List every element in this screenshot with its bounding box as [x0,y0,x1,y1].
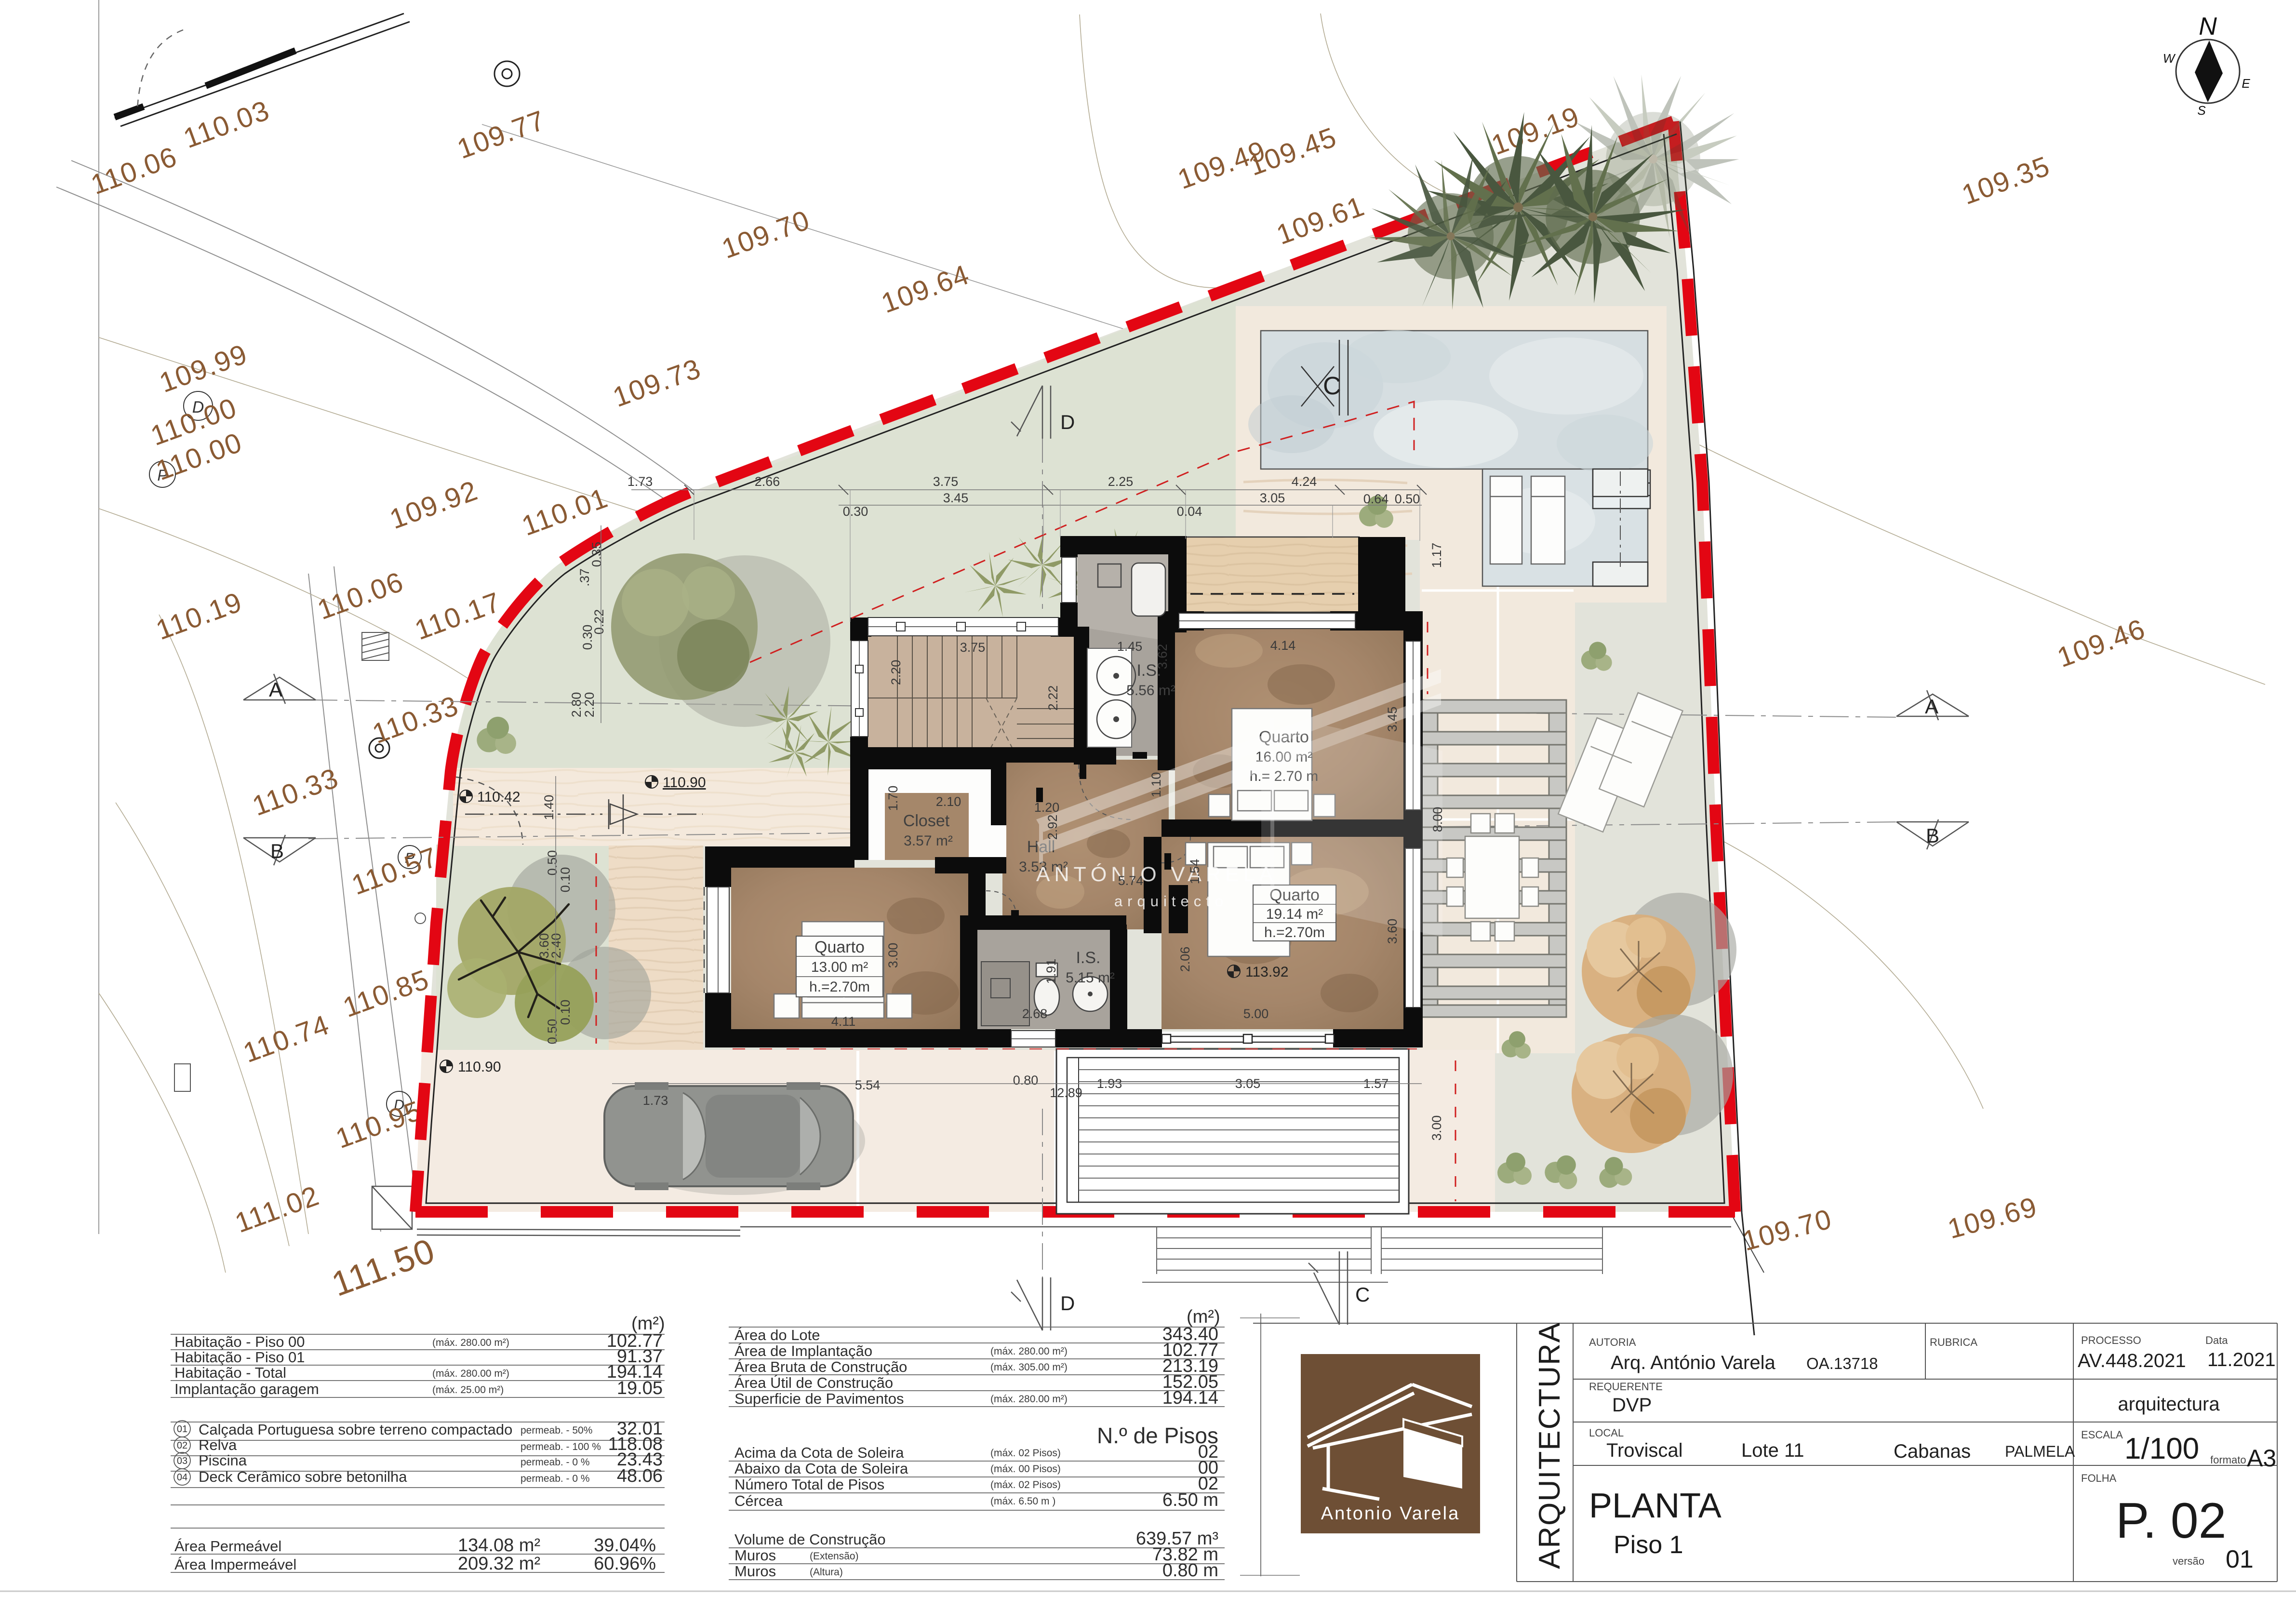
svg-text:6.50 m: 6.50 m [1162,1490,1218,1510]
svg-text:A3: A3 [2247,1445,2276,1472]
svg-text:3.00: 3.00 [1429,1115,1444,1141]
svg-text:Acima da Cota de Soleira: Acima da Cota de Soleira [734,1444,904,1461]
svg-text:2.68: 2.68 [1022,1007,1048,1021]
svg-text:PROCESSO: PROCESSO [2081,1334,2141,1346]
svg-text:Número Total de Pisos: Número Total de Pisos [734,1476,884,1493]
svg-text:5.56 m²: 5.56 m² [1126,683,1175,698]
svg-text:0.10: 0.10 [558,867,573,893]
svg-text:Troviscal: Troviscal [1606,1440,1683,1461]
svg-text:Lote 11: Lote 11 [1741,1440,1804,1461]
svg-text:1.45: 1.45 [1117,639,1143,654]
svg-text:Área do Lote: Área do Lote [734,1327,820,1343]
svg-text:0.04: 0.04 [1177,504,1202,519]
svg-text:Cércea: Cércea [734,1492,783,1509]
svg-text:PALMELA: PALMELA [2005,1443,2075,1460]
svg-text:Área Impermeável: Área Impermeável [174,1556,296,1573]
svg-text:2.06: 2.06 [1178,947,1192,972]
svg-text:0.50: 0.50 [545,850,560,876]
svg-text:Quarto: Quarto [814,938,865,956]
svg-text:194.14: 194.14 [1162,1388,1218,1408]
svg-text:3.57 m²: 3.57 m² [904,833,953,849]
svg-text:3.45: 3.45 [943,491,969,505]
svg-text:(máx. 280.00 m²): (máx. 280.00 m²) [990,1346,1068,1357]
svg-text:Muros: Muros [734,1547,776,1564]
svg-text:0.80: 0.80 [1013,1073,1039,1087]
svg-text:Implantação garagem: Implantação garagem [174,1381,319,1397]
svg-text:permeab. - 0 %: permeab. - 0 % [521,1473,590,1484]
svg-text:0.10: 0.10 [558,1000,573,1025]
svg-text:Superficie de Pavimentos: Superficie de Pavimentos [734,1390,904,1407]
svg-text:60.96%: 60.96% [594,1554,656,1574]
svg-text:4.24: 4.24 [1292,474,1317,489]
svg-text:(máx. 6.50 m ): (máx. 6.50 m ) [990,1496,1055,1507]
svg-text:2.20: 2.20 [582,692,597,718]
svg-text:I.S.: I.S. [1076,949,1100,967]
svg-text:110.90: 110.90 [663,775,706,791]
svg-text:(máx. 02 Pisos): (máx. 02 Pisos) [990,1479,1061,1490]
svg-text:3.62: 3.62 [1155,644,1170,670]
svg-text:B: B [1926,824,1939,847]
svg-text:1/100: 1/100 [2124,1432,2199,1465]
svg-text:Habitação - Piso 00: Habitação - Piso 00 [174,1333,305,1350]
svg-text:3.45: 3.45 [1385,707,1400,732]
svg-text:0.64: 0.64 [1363,492,1389,506]
svg-text:Antonio Varela: Antonio Varela [1321,1503,1460,1524]
svg-text:Volume de Construção: Volume de Construção [734,1531,886,1548]
svg-text:Habitação - Piso 01: Habitação - Piso 01 [174,1349,305,1366]
svg-text:REQUERENTE: REQUERENTE [1589,1381,1663,1393]
svg-text:P. 02: P. 02 [2116,1493,2226,1549]
svg-text:D: D [1060,1292,1075,1315]
svg-text:Cabanas: Cabanas [1894,1441,1971,1462]
svg-text:8.00: 8.00 [1430,807,1445,832]
svg-text:Data: Data [2205,1334,2228,1346]
svg-text:2.22: 2.22 [1046,685,1060,711]
svg-text:E: E [2242,76,2250,91]
svg-text:2.25: 2.25 [1108,474,1134,489]
svg-text:Habitação - Total: Habitação - Total [174,1364,286,1381]
svg-text:(máx. 280.00 m²): (máx. 280.00 m²) [990,1394,1068,1405]
svg-text:0.80 m: 0.80 m [1162,1560,1218,1581]
svg-text:versão: versão [2173,1555,2204,1567]
svg-text:Área Permeável: Área Permeável [174,1538,281,1555]
svg-text:0.30: 0.30 [580,625,595,650]
svg-text:1.70: 1.70 [886,786,900,811]
svg-text:(máx. 280.00 m²): (máx. 280.00 m²) [432,1368,509,1379]
svg-text:4.14: 4.14 [1270,638,1296,653]
svg-text:1.17: 1.17 [1429,543,1444,568]
svg-text:N: N [2199,13,2217,40]
svg-text:OA.13718: OA.13718 [1806,1355,1878,1372]
svg-text:19.05: 19.05 [617,1378,663,1398]
svg-text:02: 02 [177,1440,187,1451]
svg-text:A: A [1925,695,1938,718]
svg-text:arquitecto: arquitecto [1114,893,1228,910]
svg-text:2.40: 2.40 [549,933,563,959]
svg-text:h.=2.70m: h.=2.70m [809,979,870,995]
svg-text:Abaixo da Cota de Soleira: Abaixo da Cota de Soleira [734,1460,908,1477]
svg-text:RUBRICA: RUBRICA [1930,1336,1977,1348]
svg-text:01: 01 [177,1424,187,1435]
svg-text:110.42: 110.42 [477,789,521,805]
svg-text:1.73: 1.73 [627,474,653,489]
svg-text:5.15 m²: 5.15 m² [1066,970,1115,986]
svg-text:01: 01 [2226,1545,2254,1573]
svg-text:0.50: 0.50 [1395,492,1420,506]
svg-text:(máx. 00 Pisos): (máx. 00 Pisos) [990,1463,1061,1475]
svg-text:12.89: 12.89 [1050,1086,1082,1100]
svg-text:19.14 m²: 19.14 m² [1266,906,1323,922]
svg-text:1.10: 1.10 [1149,772,1163,798]
svg-text:0.35: 0.35 [589,542,604,567]
svg-text:5.00: 5.00 [1243,1007,1269,1021]
svg-text:(máx. 280.00 m²): (máx. 280.00 m²) [432,1337,509,1348]
svg-text:1.20: 1.20 [1034,800,1060,815]
svg-text:Área Bruta de Construção: Área Bruta de Construção [734,1358,907,1375]
svg-text:permeab. - 50%: permeab. - 50% [521,1425,592,1436]
svg-text:(máx. 25.00 m²): (máx. 25.00 m²) [432,1384,504,1396]
svg-text:FOLHA: FOLHA [2081,1472,2117,1484]
svg-text:2.92: 2.92 [1045,815,1060,840]
svg-text:ESCALA: ESCALA [2081,1429,2123,1441]
svg-text:13.00 m²: 13.00 m² [811,959,868,975]
svg-text:11.2021: 11.2021 [2207,1349,2276,1370]
svg-text:Área de Implantação: Área de Implantação [734,1342,872,1359]
svg-text:1.73: 1.73 [643,1093,668,1108]
svg-text:0.30: 0.30 [843,504,868,519]
svg-text:LOCAL: LOCAL [1589,1427,1624,1439]
svg-text:DVP: DVP [1612,1395,1652,1416]
svg-text:2.10: 2.10 [936,794,961,809]
svg-text:110.90: 110.90 [458,1059,501,1075]
svg-text:3.75: 3.75 [933,474,959,489]
svg-text:2.20: 2.20 [889,660,903,685]
svg-text:(Extensão): (Extensão) [810,1551,859,1562]
svg-text:2.80: 2.80 [569,692,584,718]
svg-text:3.05: 3.05 [1260,491,1285,505]
svg-text:formato: formato [2210,1454,2246,1466]
svg-text:Calçada Portuguesa sobre terre: Calçada Portuguesa sobre terreno compact… [199,1421,512,1438]
svg-text:W: W [2163,51,2176,66]
svg-text:2.66: 2.66 [755,474,780,489]
svg-text:Relva: Relva [199,1436,237,1453]
svg-text:AUTORIA: AUTORIA [1589,1336,1636,1348]
svg-text:(máx. 305.00 m²): (máx. 305.00 m²) [990,1362,1068,1373]
svg-text:1.40: 1.40 [542,795,556,820]
svg-text:3.75: 3.75 [960,640,986,655]
svg-text:0.50: 0.50 [545,1019,560,1045]
svg-text:Closet: Closet [903,812,950,830]
svg-text:S: S [2197,103,2206,118]
svg-text:04: 04 [177,1472,187,1483]
svg-text:ARQUITECTURA: ARQUITECTURA [1533,1322,1566,1569]
svg-text:209.32 m²: 209.32 m² [458,1554,540,1574]
svg-text:4.11: 4.11 [831,1014,856,1029]
svg-text:5.74: 5.74 [1118,873,1144,888]
svg-text:Muros: Muros [734,1563,776,1580]
svg-text:C: C [1355,1283,1370,1306]
svg-text:Piscina: Piscina [199,1452,247,1469]
svg-text:AV.448.2021: AV.448.2021 [2078,1350,2186,1371]
svg-text:permeab. - 100 %: permeab. - 100 % [521,1441,601,1452]
svg-text:(Altura): (Altura) [810,1567,843,1578]
svg-text:Deck Cerâmico sobre betonilha: Deck Cerâmico sobre betonilha [199,1468,407,1485]
svg-text:permeab. - 0 %: permeab. - 0 % [521,1457,590,1468]
svg-text:arquitectura: arquitectura [2118,1394,2220,1415]
svg-text:B: B [270,840,284,862]
svg-text:ANTÓNIO VARELA: ANTÓNIO VARELA [1036,863,1277,886]
svg-text:C: C [1323,372,1341,400]
svg-text:(máx. 02 Pisos): (máx. 02 Pisos) [990,1448,1061,1459]
svg-text:39.04%: 39.04% [594,1535,656,1556]
svg-text:48.06: 48.06 [617,1466,663,1486]
svg-text:Arq. António Varela: Arq. António Varela [1611,1352,1775,1373]
svg-text:134.08 m²: 134.08 m² [458,1535,540,1556]
svg-text:Piso 1: Piso 1 [1614,1531,1683,1559]
svg-text:Área Útil de Construção: Área Útil de Construção [734,1374,893,1391]
svg-text:1.54: 1.54 [1188,859,1202,885]
svg-text:3.60: 3.60 [1385,919,1400,944]
svg-text:.37: .37 [577,568,592,587]
svg-text:D: D [1060,411,1075,433]
svg-text:3.00: 3.00 [886,943,900,968]
svg-text:113.92: 113.92 [1245,964,1289,980]
svg-text:5.54: 5.54 [855,1078,881,1092]
svg-text:03: 03 [177,1456,187,1466]
svg-text:h.=2.70m: h.=2.70m [1264,925,1325,940]
svg-text:PLANTA: PLANTA [1589,1487,1722,1525]
svg-text:1.91: 1.91 [1044,959,1058,984]
svg-text:A: A [269,678,282,701]
